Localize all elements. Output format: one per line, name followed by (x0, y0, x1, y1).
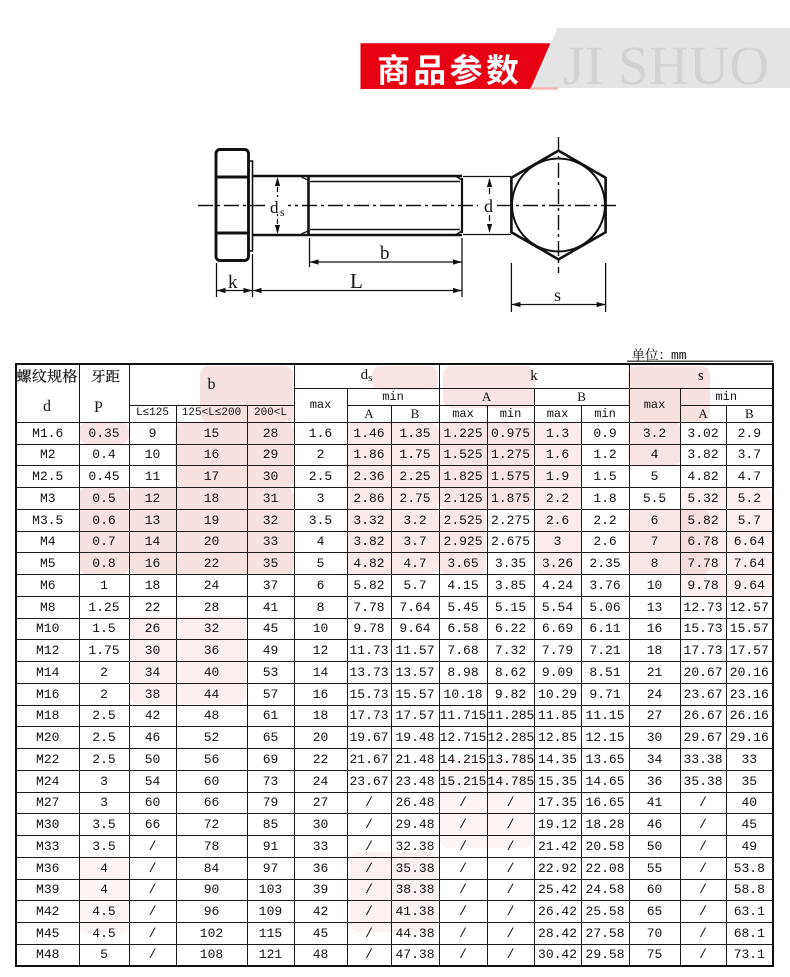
svg-text:JI SHUO: JI SHUO (563, 35, 770, 96)
svg-text:s: s (280, 205, 285, 219)
svg-text:b: b (380, 243, 390, 264)
svg-text:L: L (350, 269, 363, 293)
svg-text:s: s (554, 285, 561, 305)
svg-text:d: d (270, 198, 279, 217)
svg-text:P: P (94, 399, 103, 416)
svg-text:d: d (484, 196, 493, 216)
svg-text:d: d (43, 398, 51, 415)
svg-text:k: k (228, 272, 238, 293)
